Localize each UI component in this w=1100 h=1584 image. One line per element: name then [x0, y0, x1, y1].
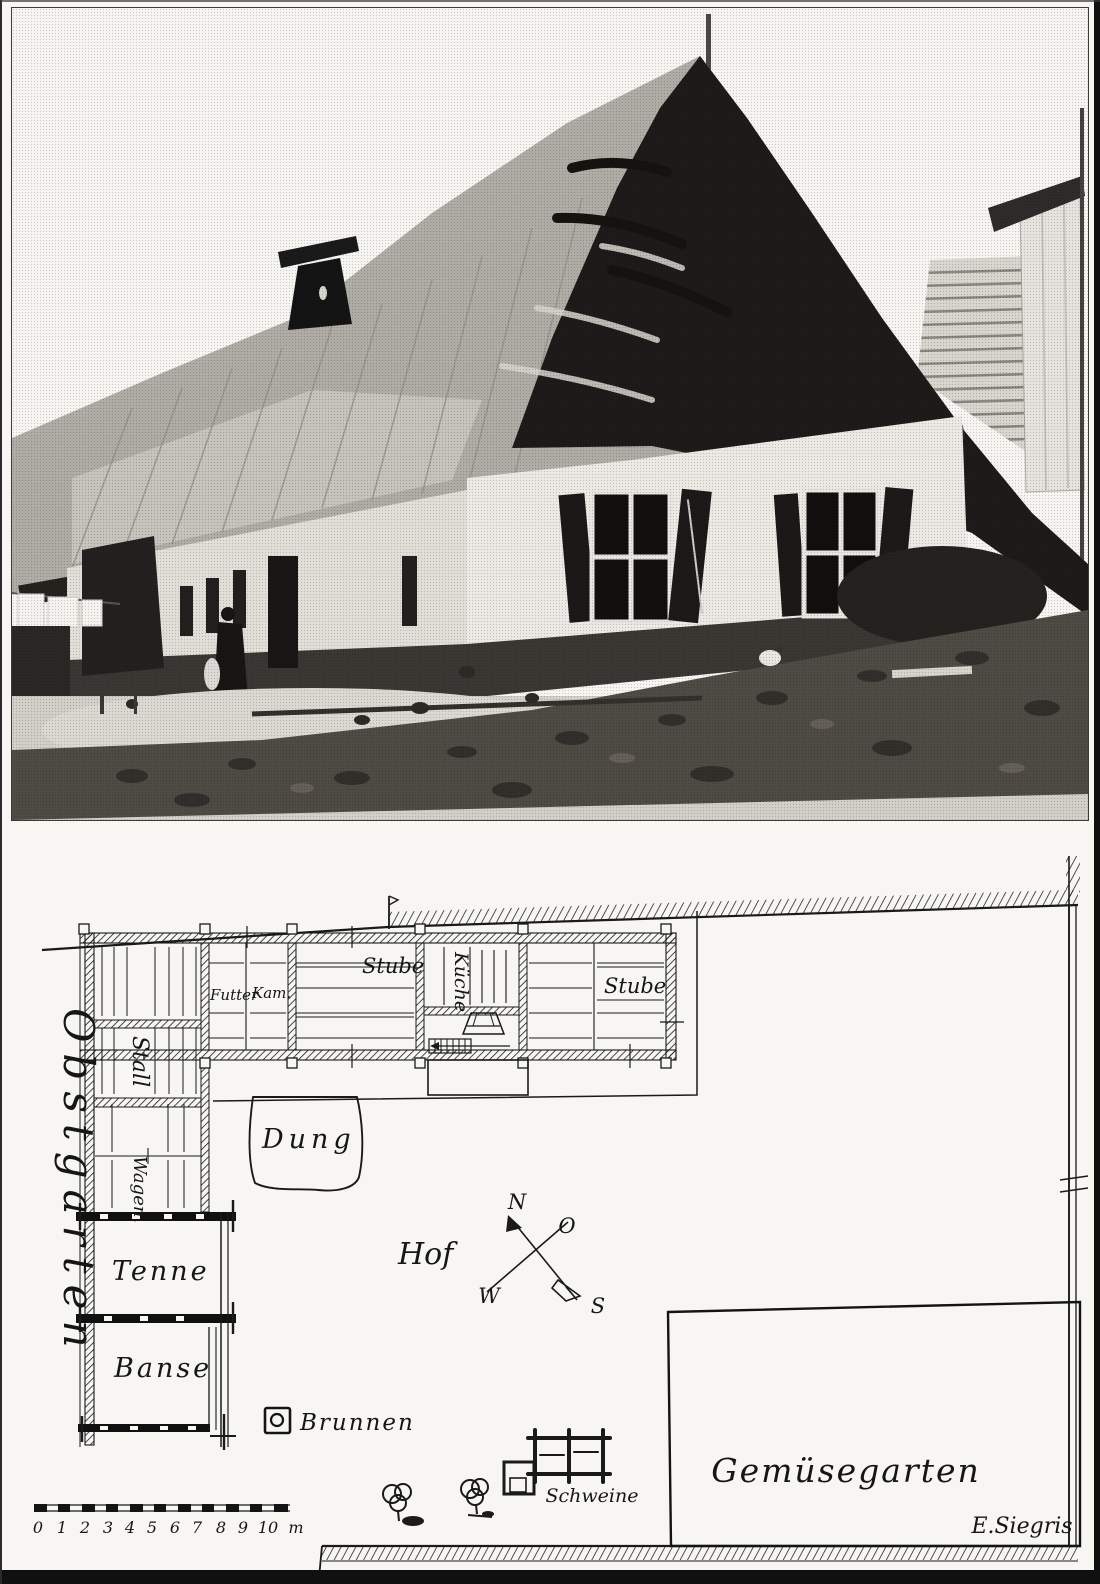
room-label-kueche: Küche	[450, 951, 472, 1012]
area-label-obstgarten: Obstgarten	[54, 1008, 103, 1359]
corner-posts	[79, 924, 671, 1068]
area-label-dung: Dung	[261, 1124, 356, 1155]
wall-east	[666, 933, 676, 1060]
room-label-banse: Banse	[113, 1353, 212, 1384]
scale-tick-7: 7	[192, 1518, 203, 1537]
area-label-gemuesegarten: Gemüsegarten	[711, 1451, 981, 1490]
scale-tick-6: 6	[170, 1518, 180, 1537]
wall-north	[80, 933, 676, 943]
feature-label-brunnen: Brunnen	[299, 1410, 415, 1436]
porch-annex	[428, 1060, 528, 1095]
gable-board	[1020, 192, 1084, 492]
scale-bar: 0 1 2 3 4 5 6 7 8 9 10 m	[33, 1504, 304, 1537]
page-edge-right	[1094, 0, 1100, 1584]
scale-tick-10: 10	[258, 1518, 278, 1537]
room-label-wagen: Wagen.	[129, 1156, 150, 1223]
page-edge-bottom	[0, 1570, 1100, 1584]
room-label-stall: Stall	[127, 1036, 152, 1087]
room-label-kam: Kam.	[251, 984, 291, 1002]
room-label-stube-east: Stube	[604, 974, 666, 998]
compass-label-south: S	[591, 1294, 605, 1318]
boundary-hatch-bottom	[322, 1547, 1078, 1560]
compass-label-north: N	[507, 1190, 527, 1214]
area-label-hof: Hof	[397, 1237, 458, 1272]
scanned-book-page: 0 1 2 3 4 5 6 7 8 9 10 m Futter Kam. Stu…	[0, 0, 1100, 1584]
farmhouse-photo-art	[12, 8, 1088, 820]
feature-label-schweine: Schweine	[546, 1485, 639, 1507]
trees	[383, 1479, 494, 1526]
page-edge-left	[0, 0, 2, 1584]
scale-tick-8: 8	[216, 1518, 226, 1537]
door	[268, 556, 298, 668]
boundary-hatch-right-stub	[1066, 856, 1080, 898]
surveyor-signature: E.Siegris	[970, 1514, 1072, 1539]
boundary-tick-flag	[389, 896, 398, 905]
pole-right	[1080, 108, 1084, 588]
gable-window-left	[558, 489, 713, 623]
room-label-stube-west: Stube	[362, 954, 424, 978]
vegetable-garden	[668, 1302, 1080, 1546]
compass-fletching	[552, 1280, 580, 1301]
well-symbol	[265, 1408, 290, 1433]
scale-tick-4: 4	[124, 1518, 135, 1537]
compass-label-east: O	[558, 1214, 575, 1238]
wing-east-wall	[201, 1060, 209, 1212]
scale-tick-1: 1	[57, 1518, 67, 1537]
site-plan-drawing: 0 1 2 3 4 5 6 7 8 9 10 m Futter Kam. Stu…	[0, 840, 1100, 1584]
compass-label-west: W	[478, 1284, 502, 1308]
scale-tick-2: 2	[79, 1518, 90, 1537]
site-plan: 0 1 2 3 4 5 6 7 8 9 10 m Futter Kam. Stu…	[0, 840, 1100, 1584]
room-label-tenne: Tenne	[112, 1256, 210, 1287]
scale-tick-0: 0	[33, 1518, 43, 1537]
page-edge-top	[0, 0, 1100, 2]
scale-tick-5: 5	[147, 1518, 157, 1537]
farmhouse-photograph	[12, 8, 1088, 820]
scale-tick-9: 9	[238, 1518, 248, 1537]
scale-tick-3: 3	[103, 1518, 113, 1537]
oven-symbol	[463, 1013, 504, 1034]
gate-tick	[1060, 1176, 1088, 1180]
scale-unit: m	[288, 1518, 303, 1537]
